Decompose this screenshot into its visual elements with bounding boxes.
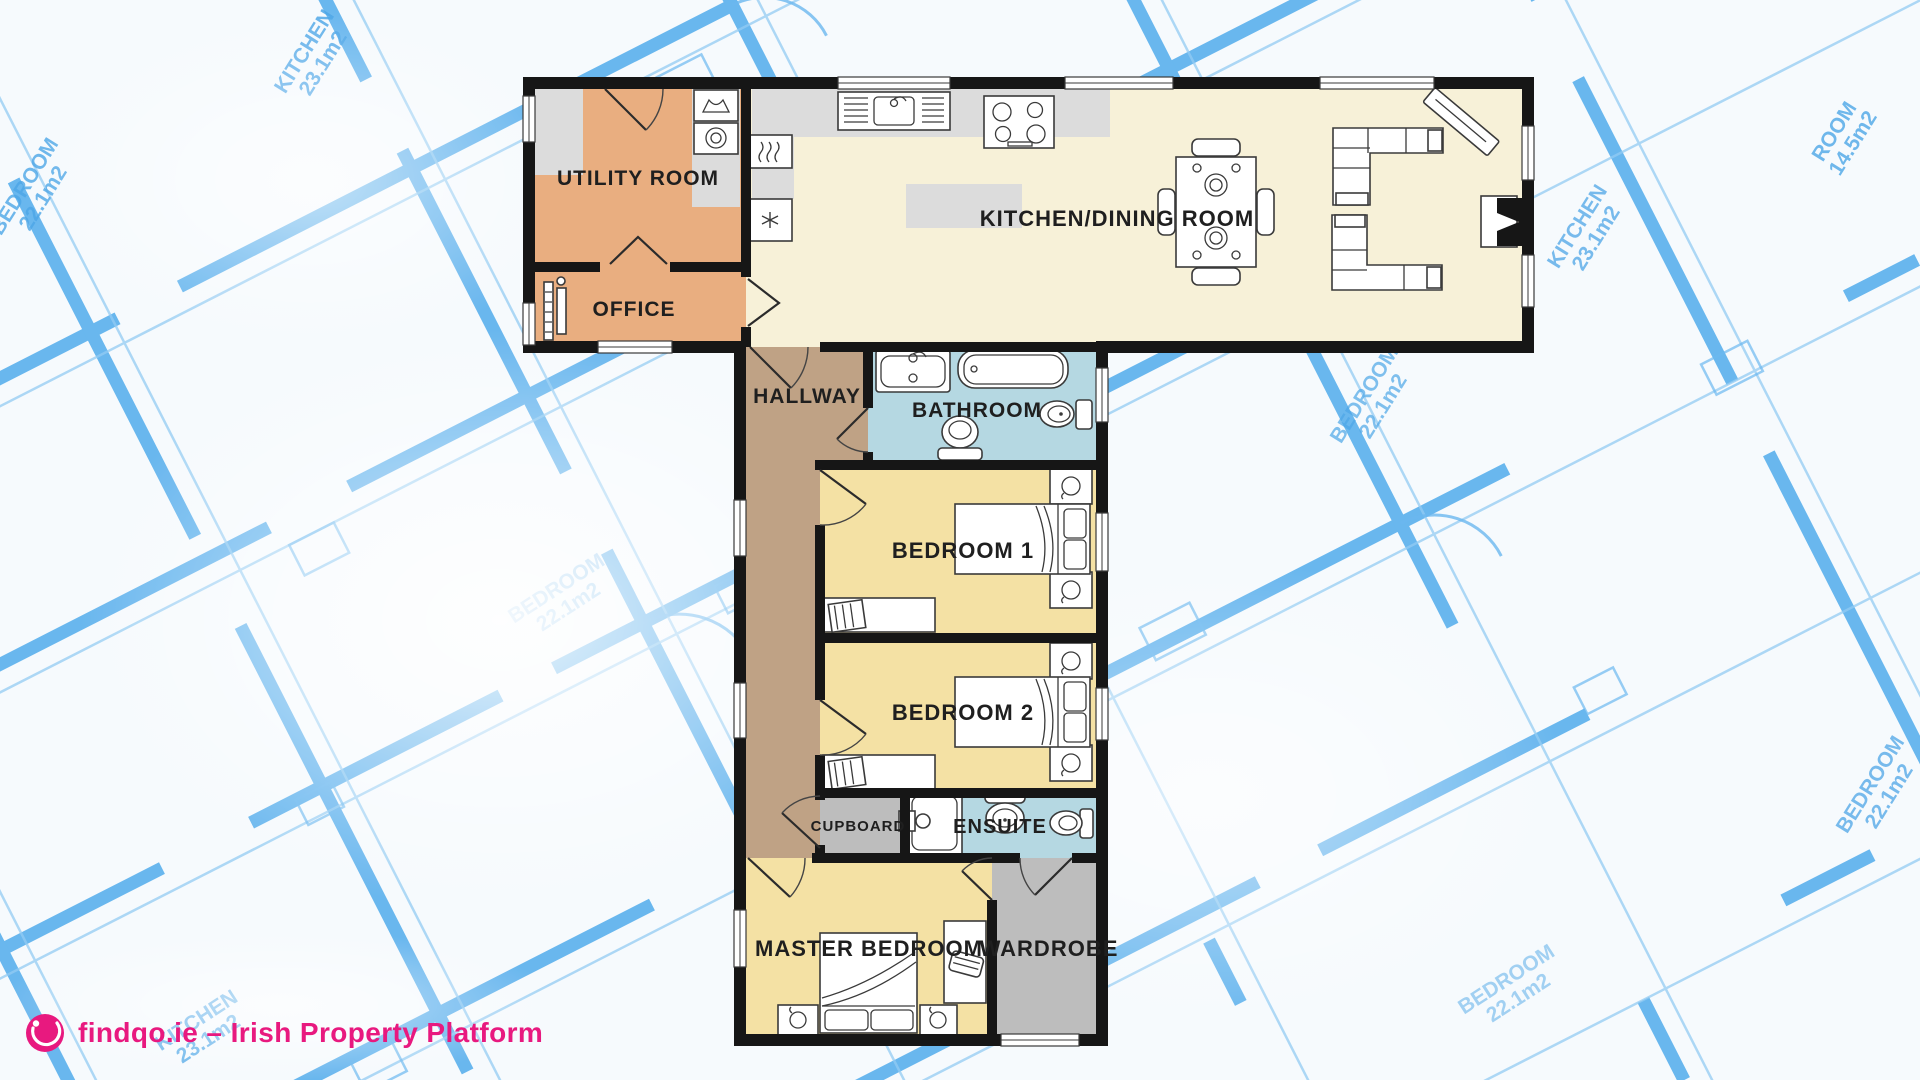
bench-icon <box>944 921 986 1003</box>
laundry-sink-icon <box>694 90 738 121</box>
desk-icon <box>823 598 935 632</box>
window <box>1096 368 1108 422</box>
window <box>1320 77 1434 89</box>
floorplan-page: KITCHEN23.1m2 ROOM14.5m2 KITCHEN23.1m2 B… <box>0 0 1920 1080</box>
window <box>598 341 672 353</box>
room-label-bedroom-2: BEDROOM 2 <box>892 700 1034 725</box>
window <box>734 500 746 556</box>
room-label-ensuite: ENSUITE <box>953 816 1047 838</box>
watermark-text: findqo.ie – Irish Property Platform <box>78 1017 543 1049</box>
window <box>1096 513 1108 571</box>
window <box>523 303 535 345</box>
bathtub-icon <box>958 350 1068 388</box>
window <box>1001 1034 1079 1046</box>
window <box>1522 126 1534 180</box>
room-label-hallway: HALLWAY <box>753 385 861 408</box>
toilet-icon <box>1040 400 1092 429</box>
bathroom-sink-icon <box>876 350 950 392</box>
window <box>1522 255 1534 307</box>
room-label-wardrobe: WARDROBE <box>980 936 1119 961</box>
globe-swirl-icon <box>26 1014 64 1052</box>
washing-machine-icon <box>694 123 738 154</box>
room-label-bedroom-1: BEDROOM 1 <box>892 538 1034 563</box>
room-label-kitchen-dining: KITCHEN/DINING ROOM <box>980 206 1254 231</box>
window <box>838 77 950 89</box>
floorplan: UTILITY ROOM OFFICE KITCHEN/DINING ROOM … <box>0 0 1920 1080</box>
room-label-bathroom: BATHROOM <box>912 399 1042 422</box>
window <box>734 910 746 967</box>
room-label-cupboard: CUPBOARD <box>811 818 906 835</box>
window <box>1096 688 1108 740</box>
room-label-utility: UTILITY ROOM <box>557 167 719 190</box>
oven-icon <box>748 135 792 168</box>
room-label-master-bedroom: MASTER BEDROOM <box>755 936 983 961</box>
bidet-icon <box>938 416 982 460</box>
desk-icon <box>823 755 935 789</box>
fridge-icon <box>748 199 792 241</box>
window <box>523 96 535 142</box>
window <box>734 683 746 738</box>
fireplace-icon <box>1481 196 1528 247</box>
window <box>1065 77 1173 89</box>
kitchen-sink-icon <box>838 92 950 130</box>
hob-icon <box>984 96 1054 148</box>
room-label-office: OFFICE <box>593 298 676 321</box>
brand-watermark: findqo.ie – Irish Property Platform <box>26 1014 543 1052</box>
